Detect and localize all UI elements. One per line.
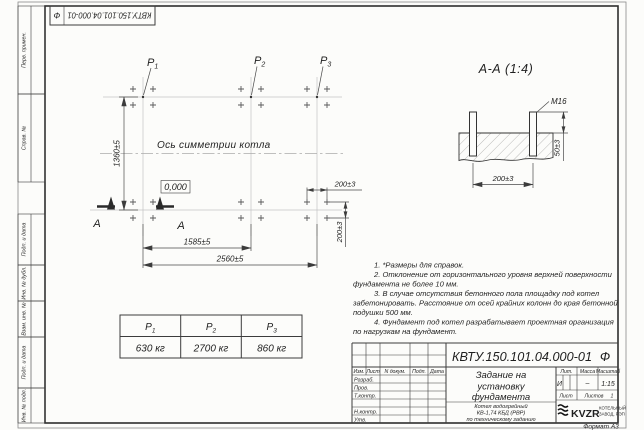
- staff-label: Т.контр.: [354, 394, 376, 400]
- load-table-value-cell: 630 кг: [136, 344, 165, 355]
- note-line: подушки 500 мм.: [353, 308, 413, 317]
- note-line: по нагрузкам на фундамент.: [353, 327, 457, 336]
- load-table-value-cell: 860 кг: [257, 344, 286, 355]
- title-line: фундамента: [472, 392, 530, 403]
- kvzr-logo-icon: [558, 405, 568, 415]
- dim-text: 50±3: [553, 139, 562, 156]
- load-label-sub: 3: [327, 62, 331, 69]
- drawing-sheet: Перв. примен. Справ. № Подп. и дата Инв.…: [0, 0, 644, 430]
- sheets-label: Листов: [584, 394, 604, 400]
- header-cell: Подп.: [412, 369, 426, 375]
- m16-label: М16: [551, 97, 567, 106]
- revision-header: Изм. Лист N докум. Подп. Дата: [353, 369, 443, 375]
- scale-value: 1:15: [601, 381, 615, 388]
- format-label: Формат А3: [583, 424, 619, 430]
- staff-label: Утв.: [353, 418, 367, 424]
- sheets-value: 1: [611, 394, 614, 400]
- subtitle-line: Котел водогрейный: [474, 403, 527, 410]
- subtitle-line: КВ-1,74 КБД (РВР): [477, 411, 526, 417]
- staff-rows: Разраб. Пров. Т.контр. Н.контр. Утв.: [353, 378, 377, 424]
- construction-grid: [90, 77, 346, 236]
- elevation-value: 0,000: [164, 182, 187, 192]
- note-line: 3. В случае отсутствия бетонного пола пл…: [374, 289, 600, 298]
- sidebar-label: Подп. и дата: [22, 223, 28, 257]
- sidebar-box-perv-primen: Перв. примен.: [18, 6, 45, 94]
- sidebar-label: Инв. № дубл.: [22, 266, 28, 299]
- header-cell: Изм.: [353, 369, 364, 375]
- svg-text:Р1: Р1: [147, 57, 158, 71]
- header-cell: Лист: [365, 369, 380, 375]
- dim-text: 200±3: [335, 221, 344, 244]
- company-cell: KVZR КОТЕЛЬНЫЙ ЗАВОД, РЭП: [558, 405, 626, 420]
- dim-bolt-spacing-y: 200±3: [330, 202, 349, 247]
- dim-text: 200±3: [492, 174, 515, 183]
- corner-stamp: Ф КВТУ.150.101.04.000-01: [50, 6, 155, 25]
- header-cell: N докум.: [385, 369, 406, 375]
- section-letter: А: [176, 220, 184, 232]
- staff-label: Н.контр.: [354, 410, 377, 416]
- section-cut-mark-right: А: [156, 198, 185, 232]
- scale-label: Масштаб: [596, 369, 621, 375]
- mass-label: Масса: [580, 369, 595, 375]
- notes: 1. *Размеры для справок. 2. Отклонение о…: [352, 261, 619, 337]
- sidebar-box-inv-dubl: Инв. № дубл.: [18, 265, 45, 301]
- dim-span-2560: 2560±5: [143, 224, 317, 268]
- dim-spacing-200: 200±3: [473, 163, 533, 188]
- note-line: 2. Отклонение от горизонтального уровня …: [373, 270, 613, 279]
- load-table-header-cell: Р3: [267, 322, 278, 335]
- load-table-value-cell: 2700 кг: [193, 344, 229, 355]
- sidebar-box-vzam-inv: Взам. инв. №: [18, 301, 45, 337]
- load-table-header-cell: Р2: [206, 322, 217, 335]
- drawing-title: Задание на установку фундамента: [472, 370, 530, 403]
- plan-view: Р1 Р2 Р3 Ось симметрии котла 0,000 1360±…: [90, 55, 362, 268]
- doc-suffix: Ф: [600, 349, 610, 364]
- sidebar-box-podp-data-1: Подп. и дата: [18, 214, 45, 265]
- dim-text: 1360±5: [113, 140, 122, 167]
- load-label-sub: 2: [260, 62, 265, 69]
- mass-value: –: [585, 380, 590, 387]
- sheet-label: Лист: [558, 394, 573, 400]
- section-cut-mark-left: А: [92, 198, 115, 230]
- anchor-bolt-left: [470, 112, 477, 156]
- staff-label: Разраб.: [354, 378, 374, 384]
- sidebar-label: Взам. инв. №: [22, 302, 28, 336]
- sheet-row: Лист Листов 1: [558, 394, 613, 400]
- sidebar-box-sprav-no: Справ. №: [18, 94, 45, 182]
- lit-value: И: [557, 381, 563, 388]
- sidebar-label: Справ. №: [22, 126, 28, 151]
- axis-of-symmetry-label: Ось симметрии котла: [157, 140, 271, 151]
- sidebar-box-inv-podl: Инв. № подл.: [18, 388, 45, 423]
- sidebar-box-podp-data-2: Подп. и дата: [18, 337, 45, 388]
- section-letter: А: [92, 218, 100, 230]
- bolt-thread-callout: М16: [537, 97, 568, 113]
- svg-text:Р2: Р2: [254, 55, 265, 69]
- svg-text:Р3: Р3: [320, 55, 331, 69]
- load-table: Р1 Р2 Р3 630 кг 2700 кг 860 кг: [120, 315, 302, 358]
- section-title: А-А (1:4): [478, 62, 534, 76]
- corner-stamp-suffix: Ф: [53, 11, 60, 21]
- header-cell: Дата: [429, 369, 444, 375]
- load-label-sub: 1: [154, 64, 158, 71]
- note-line: 1. *Размеры для справок.: [374, 261, 464, 270]
- corner-stamp-doc-number: КВТУ.150.101.04.000-01: [67, 11, 151, 21]
- note-line: забетонировать. Расстояние от осей крайн…: [352, 299, 619, 308]
- lit-mass-scale: Лит. Масса Масштаб И – 1:15: [557, 369, 621, 388]
- sidebar-label: Подп. и дата: [22, 346, 28, 380]
- note-line: фундамента не более 10 мм.: [353, 280, 459, 289]
- section-view: А-А (1:4) М16 50±3 200±3: [459, 62, 568, 188]
- doc-number: КВТУ.150.101.04.000-01: [452, 349, 592, 364]
- lit-label: Лит.: [559, 369, 572, 375]
- title-line: Задание на: [476, 370, 527, 381]
- company-line: КОТЕЛЬНЫЙ: [599, 406, 626, 411]
- sidebar-label: Инв. № подл.: [22, 389, 28, 422]
- elevation-mark: 0,000: [161, 181, 190, 194]
- sidebar-columns: Перв. примен. Справ. № Подп. и дата Инв.…: [18, 6, 45, 423]
- anchor-bolt-right: [530, 112, 537, 156]
- load-table-header-cell: Р1: [145, 322, 156, 335]
- subtitle-line: по техническому заданию: [466, 417, 536, 423]
- staff-label: Пров.: [354, 386, 369, 392]
- company-line: ЗАВОД, РЭП: [599, 412, 625, 417]
- title-line: установку: [476, 382, 526, 393]
- dim-text: 1585±5: [184, 238, 211, 247]
- drawing-subtitle: Котел водогрейный КВ-1,74 КБД (РВР) по т…: [466, 403, 536, 423]
- dim-bolt-spacing-x: 200±3: [307, 180, 362, 200]
- dim-text: 200±3: [334, 180, 357, 189]
- dim-text: 2560±5: [216, 255, 244, 264]
- note-line: 4. Фундамент под котел разрабатывает про…: [374, 318, 614, 327]
- title-block: Изм. Лист N докум. Подп. Дата Разраб. Пр…: [352, 343, 626, 424]
- kvzr-logo-text: KVZR: [571, 408, 600, 420]
- sidebar-label: Перв. примен.: [22, 32, 28, 68]
- drawing-canvas: Перв. примен. Справ. № Подп. и дата Инв.…: [0, 0, 644, 430]
